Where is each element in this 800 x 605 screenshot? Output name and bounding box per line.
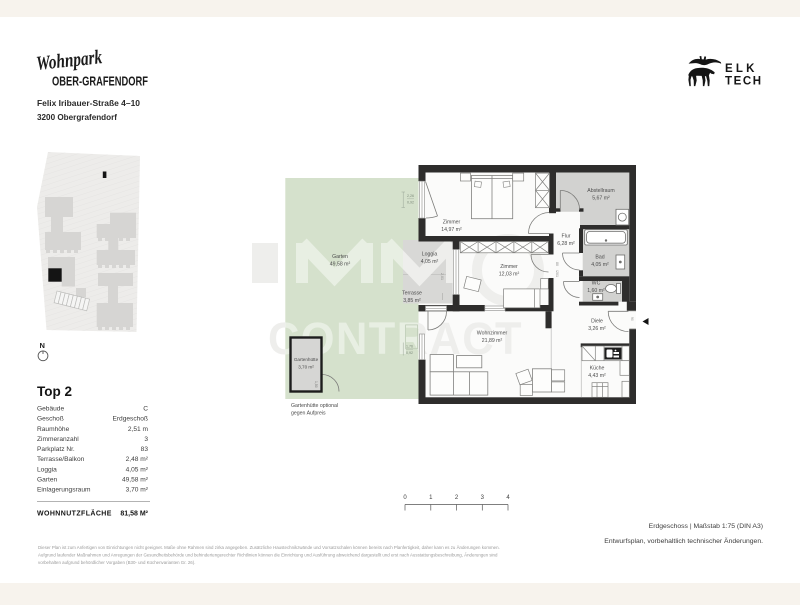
svg-text:Erdgeschoß: Erdgeschoß [112, 416, 148, 423]
svg-text:vorbehalten aufgrund behördlic: vorbehalten aufgrund behördlicher Vorgab… [38, 560, 195, 565]
svg-text:83: 83 [141, 446, 149, 453]
svg-text:3: 3 [144, 436, 148, 443]
svg-text:2,48 m²: 2,48 m² [126, 456, 149, 463]
svg-text:Dieser Plan ist zum Anfertigen: Dieser Plan ist zum Anfertigen von Einri… [38, 545, 500, 550]
svg-text:Gartenhütte: Gartenhütte [294, 357, 319, 362]
svg-text:0,92: 0,92 [407, 201, 414, 205]
svg-text:2,51 m: 2,51 m [128, 426, 149, 433]
svg-text:ELK: ELK [725, 63, 758, 75]
svg-text:Parkplatz Nr.: Parkplatz Nr. [37, 446, 75, 453]
svg-text:4,05 m²: 4,05 m² [421, 259, 439, 265]
svg-text:3200 Obergrafendorf: 3200 Obergrafendorf [37, 112, 117, 122]
svg-text:Felix Iribauer-Straße 4–10: Felix Iribauer-Straße 4–10 [37, 98, 140, 108]
svg-text:TECH: TECH [725, 76, 763, 88]
svg-text:4,43 m²: 4,43 m² [588, 373, 606, 379]
svg-text:Zimmeranzahl: Zimmeranzahl [37, 436, 79, 443]
svg-text:90: 90 [630, 317, 634, 321]
svg-text:1,50: 1,50 [314, 381, 318, 388]
svg-text:Gartenhütte optional: Gartenhütte optional [291, 403, 338, 409]
svg-text:21,89 m²: 21,89 m² [482, 338, 503, 344]
svg-text:3,85 m²: 3,85 m² [403, 298, 421, 304]
svg-text:6,28 m²: 6,28 m² [557, 241, 575, 247]
svg-text:Abstellraum: Abstellraum [587, 188, 614, 194]
svg-text:Flur: Flur [562, 234, 571, 240]
svg-text:3,70 m²: 3,70 m² [126, 487, 149, 494]
svg-text:Terrasse/Balkon: Terrasse/Balkon [37, 456, 85, 463]
svg-text:81,58 M²: 81,58 M² [120, 511, 148, 518]
svg-text:80: 80 [555, 262, 559, 266]
svg-text:Top 2: Top 2 [37, 384, 72, 399]
svg-text:5,67 m²: 5,67 m² [592, 196, 610, 202]
svg-text:49,58 m²: 49,58 m² [122, 477, 149, 484]
svg-text:Diele: Diele [591, 319, 603, 325]
svg-text:gegen Aufpreis: gegen Aufpreis [291, 411, 326, 417]
svg-text:0,92: 0,92 [406, 351, 413, 355]
svg-text:Erdgeschoss | Maßstab 1:75 (DI: Erdgeschoss | Maßstab 1:75 (DIN A3) [649, 523, 763, 530]
svg-text:Küche: Küche [590, 366, 605, 372]
svg-text:Zimmer: Zimmer [443, 220, 461, 226]
svg-text:4,05 m²: 4,05 m² [591, 262, 609, 268]
svg-text:Loggia: Loggia [37, 466, 57, 473]
svg-text:Aufgrund laufender Maßnahmen u: Aufgrund laufender Maßnahmen und Anregun… [38, 553, 498, 558]
svg-text:14,97 m²: 14,97 m² [441, 227, 462, 233]
svg-text:Raumhöhe: Raumhöhe [37, 426, 70, 433]
svg-text:Wohnzimmer: Wohnzimmer [477, 331, 508, 337]
svg-text:/201: /201 [555, 270, 559, 277]
svg-text:OBER-GRAFENDORF: OBER-GRAFENDORF [52, 74, 148, 89]
svg-text:2,26: 2,26 [407, 194, 414, 198]
svg-text:N: N [40, 341, 45, 350]
svg-text:Terrasse: Terrasse [402, 291, 422, 297]
svg-text:3,70 m²: 3,70 m² [298, 365, 314, 370]
svg-text:WOHNNUTZFLÄCHE: WOHNNUTZFLÄCHE [37, 510, 112, 518]
svg-text:C: C [143, 406, 148, 413]
svg-text:Garten: Garten [37, 477, 57, 484]
svg-text:2,01: 2,01 [440, 273, 444, 280]
svg-text:49,58 m²: 49,58 m² [330, 262, 351, 268]
svg-text:Geschoß: Geschoß [37, 416, 64, 423]
svg-text:12,03 m²: 12,03 m² [499, 272, 520, 278]
svg-text:Gebäude: Gebäude [37, 406, 64, 413]
svg-text:Zimmer: Zimmer [500, 264, 518, 270]
svg-text:Entwurfsplan, vorbehaltlich te: Entwurfsplan, vorbehaltlich technischer … [604, 537, 763, 545]
svg-text:WC: WC [592, 281, 601, 287]
svg-text:Garten: Garten [332, 254, 348, 260]
svg-text:3,26 m²: 3,26 m² [588, 326, 606, 332]
svg-text:4,05 m²: 4,05 m² [126, 466, 149, 473]
svg-text:Einlagerungsraum: Einlagerungsraum [37, 487, 91, 494]
svg-text:1,60 m²: 1,60 m² [587, 288, 605, 294]
svg-text:Loggia: Loggia [422, 252, 438, 258]
svg-text:1,76: 1,76 [406, 345, 413, 349]
svg-text:Bad: Bad [595, 255, 604, 261]
